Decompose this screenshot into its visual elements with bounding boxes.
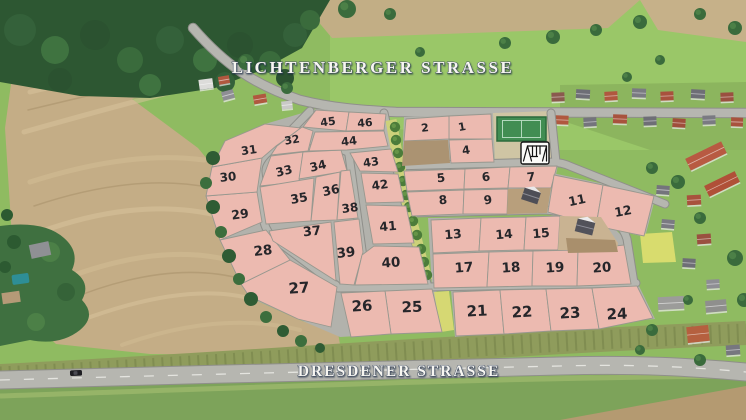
plot-number-5: 5	[436, 171, 446, 186]
plot-number-40: 40	[381, 254, 401, 271]
dirt-patch	[566, 238, 618, 253]
plot-number-35: 35	[289, 189, 309, 207]
playground-icon	[521, 142, 549, 164]
plot-number-14: 14	[495, 226, 514, 242]
bush-highlight	[393, 137, 397, 141]
tree-highlight	[656, 56, 661, 61]
house	[555, 115, 568, 126]
house	[686, 325, 710, 345]
plot-number-7: 7	[526, 170, 536, 185]
sports-court	[497, 117, 546, 141]
house	[731, 117, 743, 128]
poplar	[7, 235, 21, 249]
plot-number-17: 17	[454, 259, 474, 276]
plot-number-13: 13	[444, 226, 463, 242]
house	[660, 91, 673, 102]
plot-number-15: 15	[532, 225, 551, 241]
street-label-dresdener: DRESDENER STRASSE	[298, 363, 500, 380]
plot-number-46: 46	[357, 116, 374, 130]
house	[613, 114, 627, 125]
house	[583, 117, 597, 128]
tree-highlight	[648, 326, 653, 331]
tree-highlight	[739, 295, 745, 301]
plot-number-25: 25	[401, 298, 422, 317]
tree-highlight	[696, 214, 701, 219]
house	[697, 234, 712, 247]
house	[726, 345, 741, 358]
house	[706, 279, 720, 290]
tree-highlight	[696, 10, 701, 15]
house	[253, 93, 268, 106]
tree-highlight	[648, 164, 653, 169]
house	[720, 92, 733, 103]
house	[702, 115, 715, 126]
house	[576, 89, 591, 100]
plot-number-18: 18	[501, 259, 521, 276]
unnumbered-lot-dirt	[402, 140, 450, 166]
house	[687, 195, 702, 207]
tree-highlight	[548, 32, 554, 38]
plot-number-42: 42	[371, 177, 389, 193]
meadow-patch-yellow	[640, 232, 676, 263]
house	[604, 91, 618, 102]
tree-highlight	[623, 73, 628, 78]
plot-number-31: 31	[240, 142, 258, 158]
bush-highlight	[414, 232, 418, 236]
bush-highlight	[410, 218, 414, 222]
plot-8	[407, 190, 464, 216]
plot-number-30: 30	[219, 169, 237, 185]
tree-highlight	[386, 10, 391, 15]
house	[218, 75, 230, 86]
bush-highlight	[395, 150, 399, 154]
plot-number-21: 21	[466, 301, 488, 320]
plot-number-38: 38	[341, 200, 359, 216]
house	[705, 299, 727, 314]
plot-number-45: 45	[320, 114, 337, 129]
plot-number-26: 26	[351, 296, 373, 315]
tree-highlight	[283, 84, 288, 89]
tree-highlight	[501, 39, 506, 44]
house	[632, 88, 646, 99]
garden-tree	[57, 283, 75, 301]
house	[658, 296, 685, 312]
plot-number-22: 22	[511, 302, 533, 321]
house	[551, 92, 564, 103]
plot-number-8: 8	[438, 193, 448, 208]
plot-1	[449, 114, 492, 139]
aerial-development-map: 1245678911121314151718192021222324252627…	[0, 0, 746, 420]
bush-highlight	[397, 164, 401, 168]
tree-highlight	[635, 17, 641, 23]
bush-highlight	[400, 178, 404, 182]
tree-highlight	[729, 252, 736, 259]
plot-number-28: 28	[253, 242, 273, 260]
tree-highlight	[684, 296, 689, 301]
plot-4	[449, 139, 494, 163]
plot-number-32: 32	[283, 132, 300, 147]
tree-highlight	[636, 346, 641, 351]
car-icon	[70, 370, 82, 376]
tree-highlight	[416, 48, 421, 53]
bush-highlight	[392, 124, 396, 128]
house	[682, 258, 696, 269]
bush-highlight	[403, 192, 407, 196]
plot-number-24: 24	[606, 304, 628, 323]
house	[656, 185, 670, 196]
plot-number-23: 23	[559, 303, 581, 322]
plot-number-41: 41	[379, 218, 398, 234]
house	[661, 219, 675, 231]
plot-number-39: 39	[336, 244, 356, 262]
plot-number-2: 2	[421, 121, 430, 135]
garden-tree	[27, 313, 45, 331]
tree-highlight	[696, 356, 701, 361]
plot-number-43: 43	[362, 154, 380, 170]
plot-number-44: 44	[340, 133, 357, 149]
house	[672, 118, 686, 129]
scene: 1245678911121314151718192021222324252627…	[0, 0, 746, 420]
tree-highlight	[673, 177, 679, 183]
street-label-lichtenberger: LICHTENBERGER STRASSE	[232, 58, 515, 77]
plot-number-12: 12	[613, 202, 633, 220]
plot-number-29: 29	[230, 205, 249, 222]
house	[643, 116, 656, 127]
plot-number-20: 20	[592, 259, 612, 276]
tree-highlight	[340, 2, 348, 10]
plot-number-37: 37	[302, 224, 322, 241]
plot-5	[404, 169, 465, 191]
tree-highlight	[592, 26, 597, 31]
plot-number-27: 27	[288, 278, 310, 297]
house	[281, 100, 293, 111]
house	[691, 89, 706, 100]
house	[198, 78, 213, 91]
poplar	[1, 209, 13, 221]
tree-highlight	[730, 23, 736, 29]
plot-number-19: 19	[545, 259, 565, 276]
